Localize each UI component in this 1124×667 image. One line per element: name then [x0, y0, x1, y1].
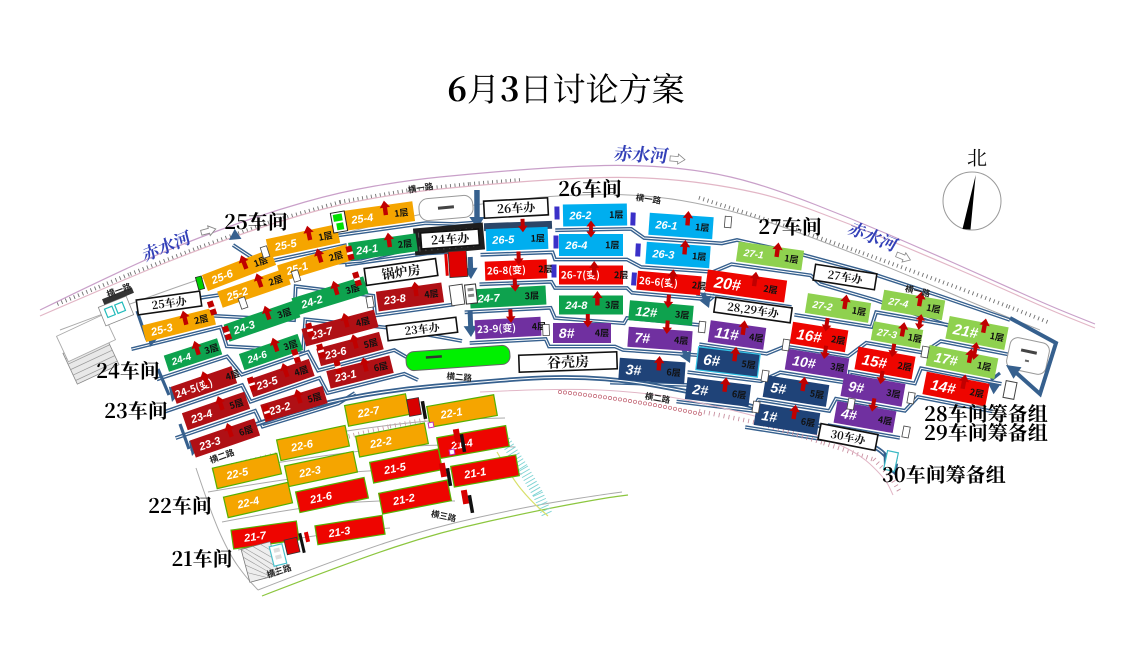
svg-text:26-3: 26-3	[651, 248, 675, 262]
svg-text:12#: 12#	[635, 303, 659, 320]
svg-text:2#: 2#	[691, 381, 710, 399]
svg-text:6#: 6#	[702, 351, 721, 370]
svg-text:26-2: 26-2	[568, 210, 591, 222]
svg-text:8#: 8#	[559, 325, 575, 341]
svg-text:7#: 7#	[634, 329, 651, 346]
svg-text:26-5: 26-5	[491, 234, 515, 247]
svg-text:1#: 1#	[760, 407, 778, 425]
svg-text:11#: 11#	[714, 324, 741, 344]
svg-text:26-4: 26-4	[564, 240, 587, 252]
svg-text:5#: 5#	[769, 379, 787, 397]
svg-text:24-7: 24-7	[476, 292, 500, 305]
svg-text:24-8: 24-8	[564, 300, 588, 312]
svg-text:3#: 3#	[625, 361, 642, 378]
svg-text:9#: 9#	[847, 378, 865, 396]
svg-text:26-1: 26-1	[654, 219, 678, 233]
